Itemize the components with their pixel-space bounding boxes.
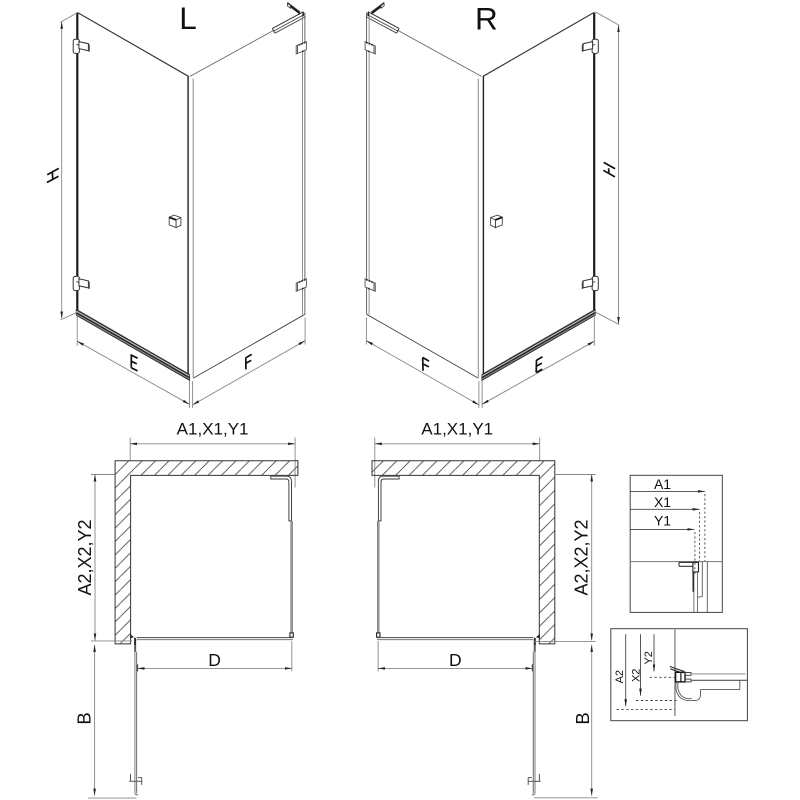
svg-text:A2: A2	[614, 670, 626, 683]
svg-text:X2: X2	[631, 669, 643, 682]
svg-text:A2,X2,Y2: A2,X2,Y2	[75, 519, 95, 595]
svg-text:X1: X1	[654, 494, 671, 510]
svg-text:L: L	[179, 0, 197, 36]
svg-text:B: B	[74, 712, 95, 724]
svg-text:D: D	[449, 650, 462, 670]
svg-text:A1,X1,Y1: A1,X1,Y1	[421, 419, 493, 438]
svg-text:D: D	[208, 650, 221, 670]
svg-text:A2,X2,Y2: A2,X2,Y2	[572, 519, 592, 595]
svg-text:A1,X1,Y1: A1,X1,Y1	[177, 419, 249, 438]
svg-text:R: R	[475, 0, 498, 36]
svg-text:Y1: Y1	[654, 512, 671, 528]
svg-text:Y2: Y2	[643, 651, 655, 664]
svg-text:A1: A1	[654, 476, 671, 492]
svg-text:B: B	[572, 712, 593, 724]
